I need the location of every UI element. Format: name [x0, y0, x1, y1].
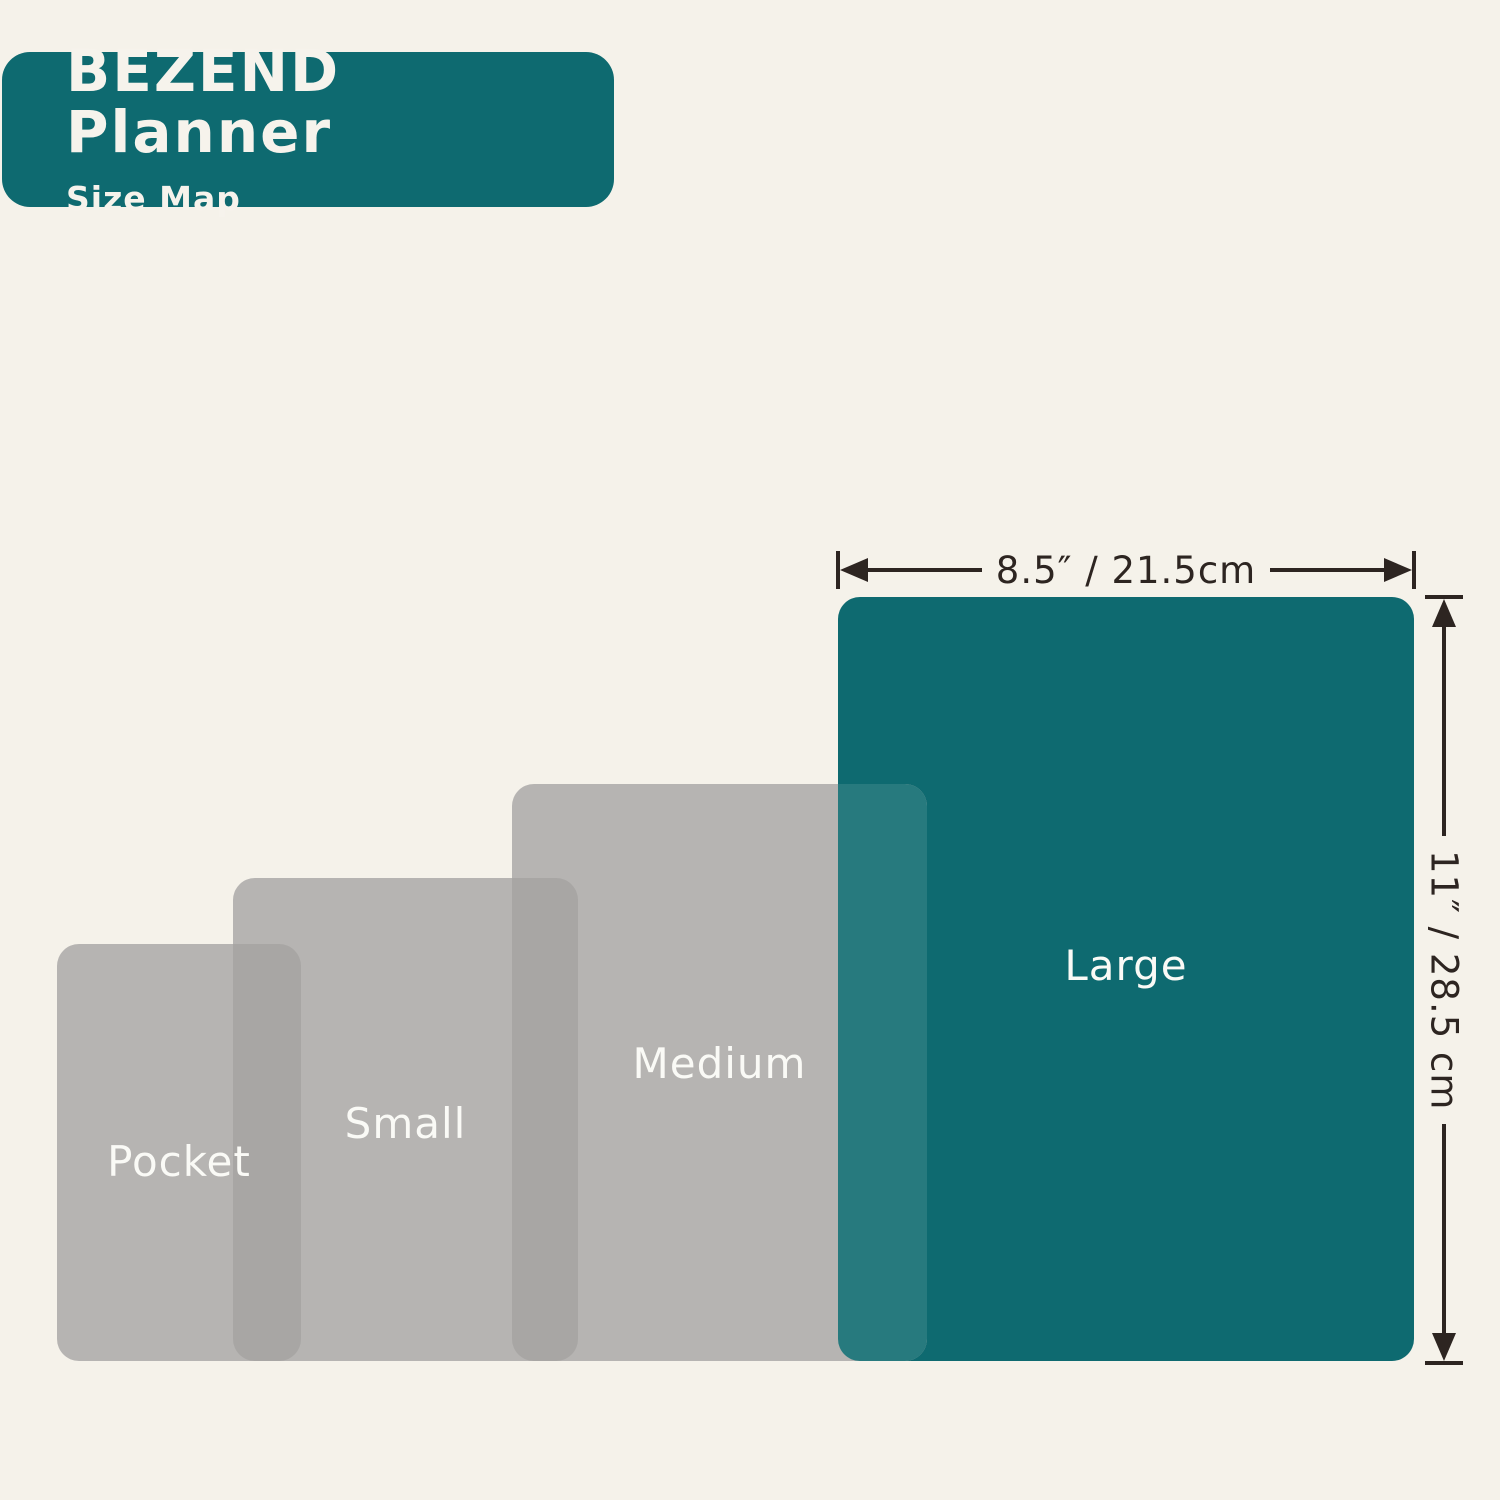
label-small: Small: [233, 1100, 578, 1148]
label-medium: Medium: [512, 1040, 927, 1088]
height-line-top: [1442, 627, 1446, 836]
width-arrow-right-icon: [1384, 558, 1412, 582]
width-dimension-label: 8.5″ / 21.5cm: [996, 549, 1256, 592]
width-dimension: 8.5″ / 21.5cm: [836, 549, 1416, 591]
height-arrow-down-icon: [1432, 1333, 1456, 1361]
height-line-bottom: [1442, 1124, 1446, 1333]
width-line-right: [1270, 568, 1384, 572]
width-line-left: [868, 568, 982, 572]
size-map-canvas: BEZEND Planner Size Map Pocket Small Med…: [0, 0, 1500, 1500]
label-large: Large: [838, 942, 1414, 990]
height-tick-bottom-icon: [1425, 1361, 1463, 1365]
width-arrow-left-icon: [840, 558, 868, 582]
height-dimension: 11″ / 28.5 cm: [1423, 595, 1465, 1365]
header-badge: BEZEND Planner Size Map: [2, 52, 614, 207]
width-tick-right-icon: [1412, 551, 1416, 589]
page-subtitle: Size Map: [66, 179, 614, 218]
height-dimension-label: 11″ / 28.5 cm: [1423, 850, 1466, 1110]
page-title: BEZEND Planner: [66, 41, 614, 163]
height-arrow-up-icon: [1432, 599, 1456, 627]
